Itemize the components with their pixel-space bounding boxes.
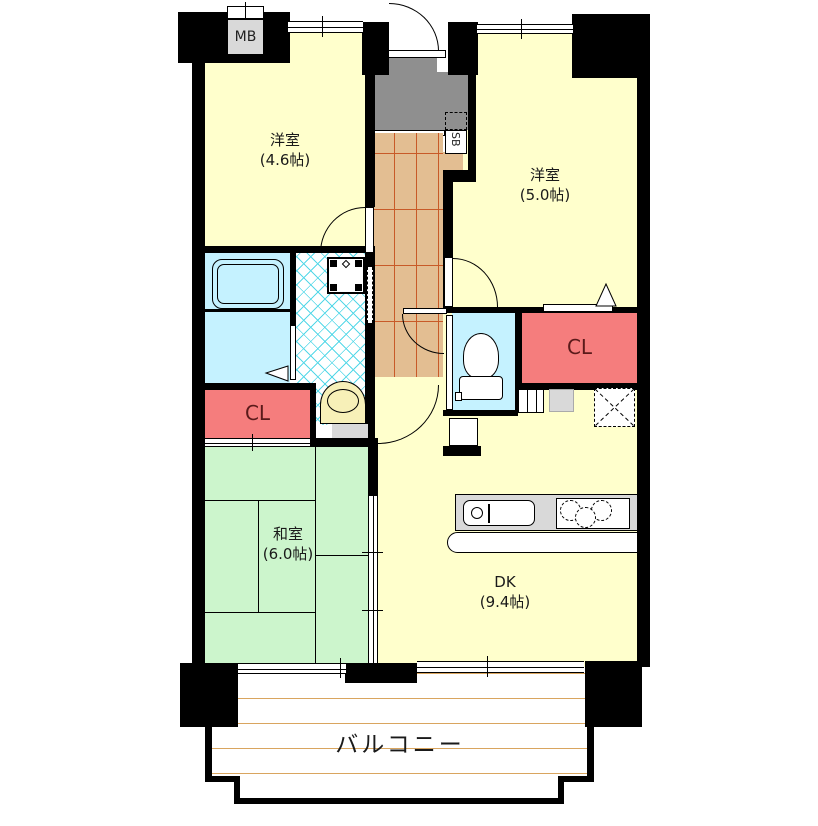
toilet-step (449, 418, 478, 446)
window-tick (322, 16, 323, 37)
toilet-bowl (463, 333, 499, 379)
washstand-base (332, 424, 368, 438)
wall-bottom-right-block (585, 661, 642, 727)
room-western1-label: 洋室 (4.6帖) (220, 130, 350, 171)
balcony-rail (205, 727, 212, 782)
balcony-rail (234, 798, 564, 804)
room-size: (6.0帖) (223, 544, 353, 564)
entrance-floor-upper (388, 57, 437, 73)
fusuma-tick (362, 610, 383, 611)
bath-partition (205, 309, 290, 312)
pan-corner (330, 260, 337, 267)
wall-bath-divider (290, 253, 296, 328)
bathtub-inner (217, 264, 279, 304)
meter-box-label: MB (227, 19, 264, 55)
room-name: 洋室 (220, 130, 350, 150)
wall-left (192, 61, 205, 667)
wall-top-right (572, 14, 650, 78)
balcony-rail (587, 727, 594, 782)
wall-bath-bottom (192, 383, 316, 390)
wall-stub-dk (443, 446, 481, 456)
wall-closet-left-right (310, 383, 316, 446)
closet-left-sliding-door (205, 438, 310, 447)
bath-door (290, 325, 296, 380)
fusuma-sliding-door (368, 496, 378, 663)
window-tick (340, 658, 341, 678)
western2-door-leaf (444, 257, 453, 307)
pan-corner (330, 284, 337, 291)
window-japanese-balcony (238, 663, 346, 674)
room-name: DK (440, 572, 570, 592)
window-tick (252, 434, 253, 451)
pan-corner (355, 284, 362, 291)
refrigerator-x (594, 388, 635, 427)
toilet-door-side (446, 315, 453, 410)
window-western2 (477, 24, 573, 34)
room-size: (9.4帖) (440, 592, 570, 612)
wall-hall-left-upper (365, 61, 375, 207)
wall-toilet-bottom (443, 410, 518, 416)
louver-door (517, 389, 544, 413)
room-japanese-label: 和室 (6.0帖) (223, 524, 353, 565)
room-name: 和室 (223, 524, 353, 544)
balcony-label: バルコニー (295, 725, 505, 759)
tatami-line (205, 612, 315, 613)
room-dk-label: DK (9.4帖) (440, 572, 570, 613)
window-tick (521, 19, 522, 39)
meter-box-tick (245, 2, 246, 18)
kitchen-bar (447, 532, 638, 553)
entrance-door-leaf (388, 50, 446, 58)
room-name: 洋室 (480, 165, 610, 185)
fusuma-tick (362, 552, 383, 553)
room-size: (5.0帖) (480, 185, 610, 205)
western1-door-leaf (365, 207, 374, 253)
wall-entrance-right (468, 72, 476, 182)
wall-bottom-left-block (180, 663, 238, 727)
kitchen-faucet (471, 507, 483, 519)
pan-corner (355, 260, 362, 267)
shoe-box-label: SB (449, 132, 462, 147)
shoe-box-front (445, 112, 467, 130)
kitchen-faucet-bar (488, 504, 490, 523)
closet-left-label: CL (205, 401, 310, 425)
washroom-opening (367, 267, 373, 323)
hallway-flooring-notch (443, 152, 463, 172)
window-dk-balcony (417, 661, 584, 673)
closet-right-label: CL (522, 335, 637, 359)
wall-right (637, 76, 650, 667)
counter-box (549, 389, 574, 412)
wall-pillar-entrance-right (448, 22, 478, 75)
closet-door-marker (595, 283, 617, 308)
room-western2-label: 洋室 (5.0帖) (480, 165, 610, 206)
stove-burner (575, 507, 596, 528)
wall-balcony-mid-block (345, 663, 417, 683)
floor-plan: MB SB 洋室 (4.6帖) 洋室 (5.0帖) (0, 0, 818, 826)
window-western1 (288, 21, 363, 33)
room-size: (4.6帖) (220, 150, 350, 170)
window-tick (487, 656, 488, 677)
toilet-handle (455, 392, 462, 401)
toilet-tank (459, 376, 503, 400)
wall-fusuma-top (368, 438, 378, 496)
bath-door-marker (265, 365, 289, 382)
washbasin-bowl (327, 389, 359, 413)
entrance-door-arc (389, 3, 439, 51)
tatami-line (205, 500, 315, 501)
